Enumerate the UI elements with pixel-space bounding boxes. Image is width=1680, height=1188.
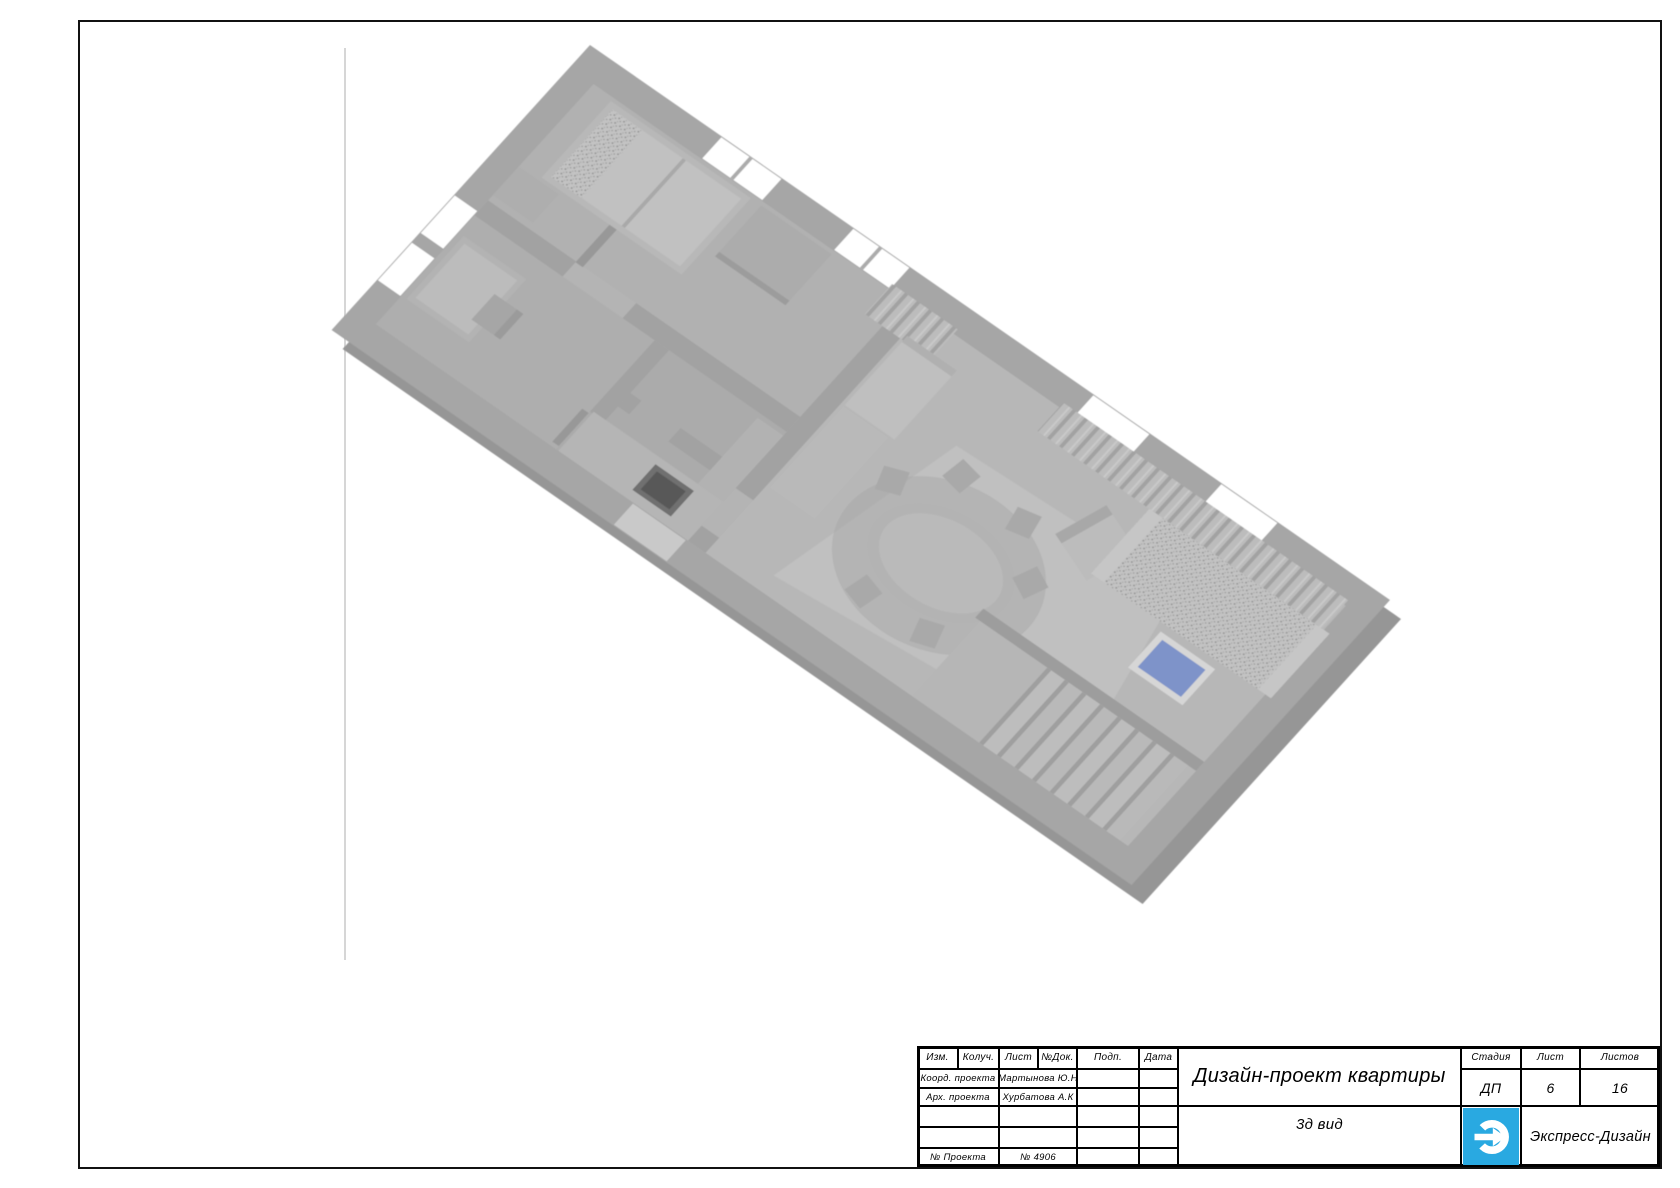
col-ndok: №Док. [1038, 1046, 1077, 1069]
drawing-sheet: Изм. Колуч. Лист №Док. Подп. Дата Коорд.… [0, 0, 1680, 1188]
stage-value: ДП [1461, 1069, 1521, 1106]
row-empty2-label [917, 1127, 999, 1148]
row-arch-value: Хурбатова А.К [999, 1088, 1077, 1106]
project-title: Дизайн-проект квартиры [1178, 1046, 1461, 1106]
title-block: Изм. Колуч. Лист №Док. Подп. Дата Коорд.… [917, 1046, 1660, 1167]
express-design-logo-icon [1469, 1115, 1513, 1159]
sheet-label: Лист [1521, 1046, 1580, 1069]
sheets-value: 16 [1580, 1069, 1660, 1106]
company-logo [1463, 1108, 1519, 1165]
sheets-label: Листов [1580, 1046, 1660, 1069]
col-data: Дата [1139, 1046, 1178, 1069]
row-coord-value: Мартынова Ю.Н [999, 1069, 1077, 1088]
row-arch-label: Арх. проекта [917, 1088, 999, 1106]
col-izm: Изм. [917, 1046, 958, 1069]
view-label: 3д вид [1178, 1106, 1461, 1167]
row-project-value: № 4906 [999, 1148, 1077, 1167]
row-project-label: № Проекта [917, 1148, 999, 1167]
stage-label: Стадия [1461, 1046, 1521, 1069]
sheet-value: 6 [1521, 1069, 1580, 1106]
row-empty1-label [917, 1106, 999, 1127]
apartment-3d-render [0, 0, 1680, 1188]
row-coord-label: Коорд. проекта [917, 1069, 999, 1088]
col-list: Лист [999, 1046, 1038, 1069]
company-name: Экспресс-Дизайн [1521, 1106, 1660, 1167]
col-podp: Подп. [1077, 1046, 1139, 1069]
col-koluch: Колуч. [958, 1046, 999, 1069]
